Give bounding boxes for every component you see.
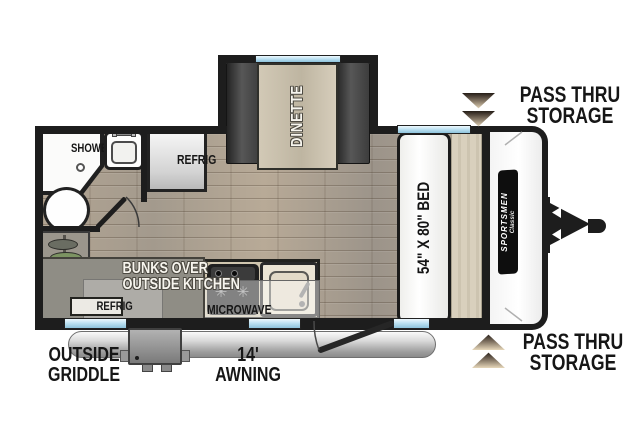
slideout-wall-left [218,55,226,134]
shower-drain [76,163,85,172]
pass-thru-top-callout: PASS THRU STORAGE [452,84,640,130]
hitch-crossbar [542,197,550,253]
window-slideout [255,55,341,63]
hitch-triangle [550,203,590,245]
pass-thru-bottom-callout: PASS THRU STORAGE [462,330,640,378]
dinette-bench-left [226,62,261,164]
dinette-label: DINETTE [288,71,308,161]
floorplan-canvas: DINETTE SHOWER REFRIG 54" X 80" BED ✳ ✳ [0,0,640,429]
outside-griddle-label: OUTSIDE GRIDDLE [28,345,140,385]
dinette-bench-right [335,62,370,164]
griddle-foot-left [142,364,153,372]
wall-top-left [35,126,227,134]
griddle-foot-right [161,364,172,372]
bath-sink-basin [111,141,137,164]
window-bottom-middle [248,318,301,329]
ladder-rung-top [48,239,78,250]
pass-thru-top-label: PASS THRU STORAGE [500,84,640,126]
window-bottom-left [64,318,127,329]
arrow-up-icon [472,334,505,370]
wardrobe [451,133,482,322]
bed-label: 54" X 80" BED [413,152,435,304]
wall-left [35,126,43,330]
slideout-wall-right [370,55,378,134]
window-bottom-right [393,318,430,329]
brand-logo-text: SPORTSMEN Classic [497,167,519,277]
awning-label: 14' AWNING [195,345,301,385]
arrow-down-icon [462,93,495,129]
hitch-coupler [588,219,606,233]
pass-thru-bottom-label: PASS THRU STORAGE [506,331,640,373]
